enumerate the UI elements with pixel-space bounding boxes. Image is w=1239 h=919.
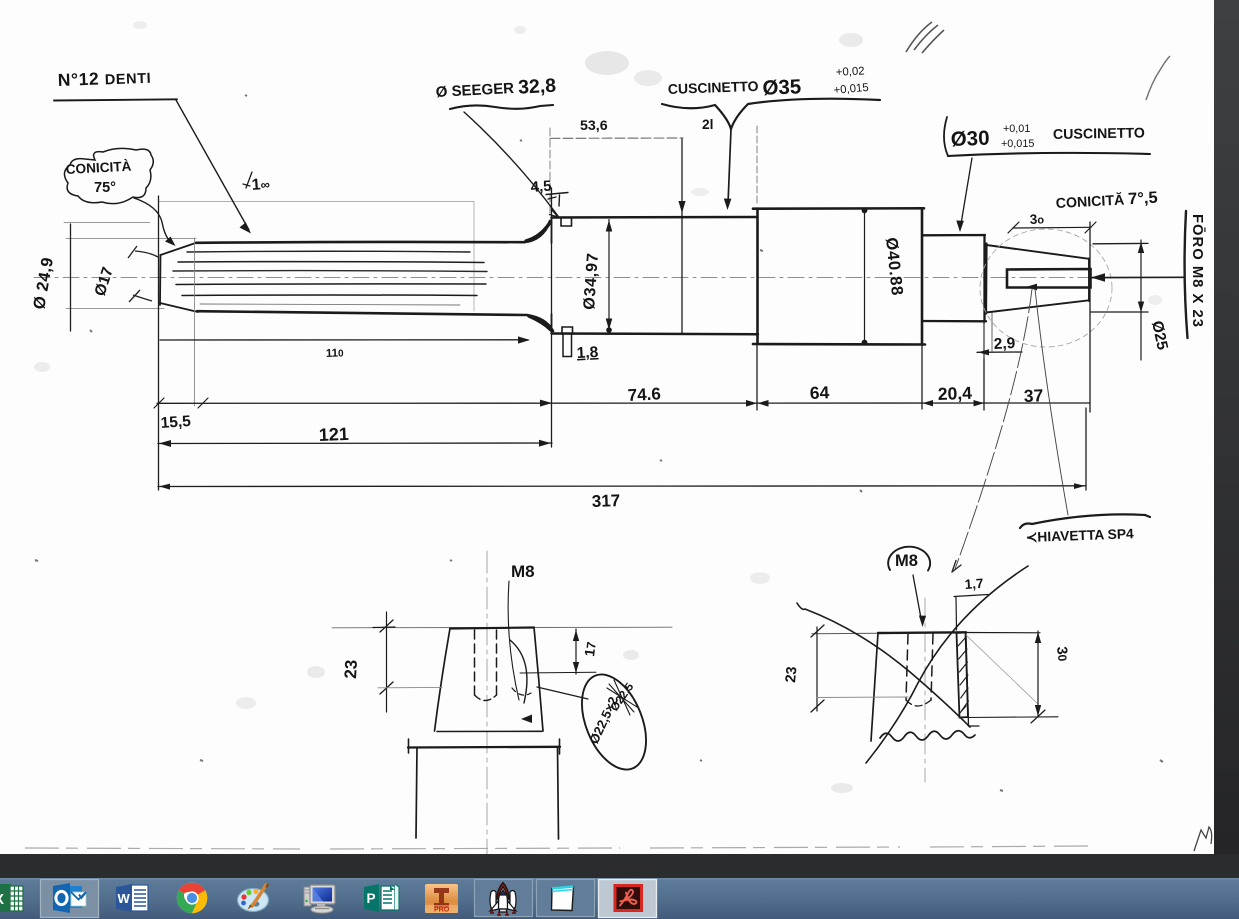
svg-text:+0,01: +0,01 — [1003, 123, 1030, 135]
svg-text:20,4: 20,4 — [937, 383, 972, 404]
svg-text:121: 121 — [318, 424, 349, 445]
svg-text:15,5: 15,5 — [160, 413, 192, 432]
svg-text:2l: 2l — [702, 117, 714, 132]
svg-text:2,9: 2,9 — [993, 335, 1016, 353]
svg-text:CUSCINETTO: CUSCINETTO — [1053, 125, 1145, 143]
svg-text:M8: M8 — [511, 562, 535, 581]
svg-text:FŌRO M8 X 23: FŌRO M8 X 23 — [1189, 214, 1205, 328]
svg-text:37: 37 — [1023, 385, 1043, 406]
svg-text:23: 23 — [341, 659, 361, 679]
svg-text:64: 64 — [809, 382, 829, 403]
svg-text:23: 23 — [783, 666, 800, 683]
svg-text:1,7: 1,7 — [964, 576, 984, 592]
svg-text:W: W — [118, 891, 131, 906]
svg-text:4,5: 4,5 — [530, 178, 552, 196]
svg-text:M8: M8 — [895, 552, 918, 570]
svg-text:53,6: 53,6 — [580, 118, 608, 134]
svg-text:Ø30: Ø30 — [950, 127, 990, 151]
svg-text:+0,015: +0,015 — [1001, 138, 1034, 150]
svg-text:PRO: PRO — [434, 907, 450, 914]
svg-text:74.6: 74.6 — [627, 384, 661, 405]
svg-text:+0,02: +0,02 — [835, 65, 864, 78]
svg-text:30: 30 — [1053, 646, 1070, 663]
svg-text:110: 110 — [326, 347, 345, 360]
svg-text:P: P — [367, 891, 376, 906]
svg-text:1,8: 1,8 — [576, 344, 599, 362]
svg-text:X: X — [0, 891, 4, 908]
svg-text:75°: 75° — [94, 180, 116, 196]
svg-text:1∞: 1∞ — [251, 176, 270, 194]
svg-text:317: 317 — [591, 491, 620, 511]
svg-text:17: 17 — [581, 641, 599, 658]
